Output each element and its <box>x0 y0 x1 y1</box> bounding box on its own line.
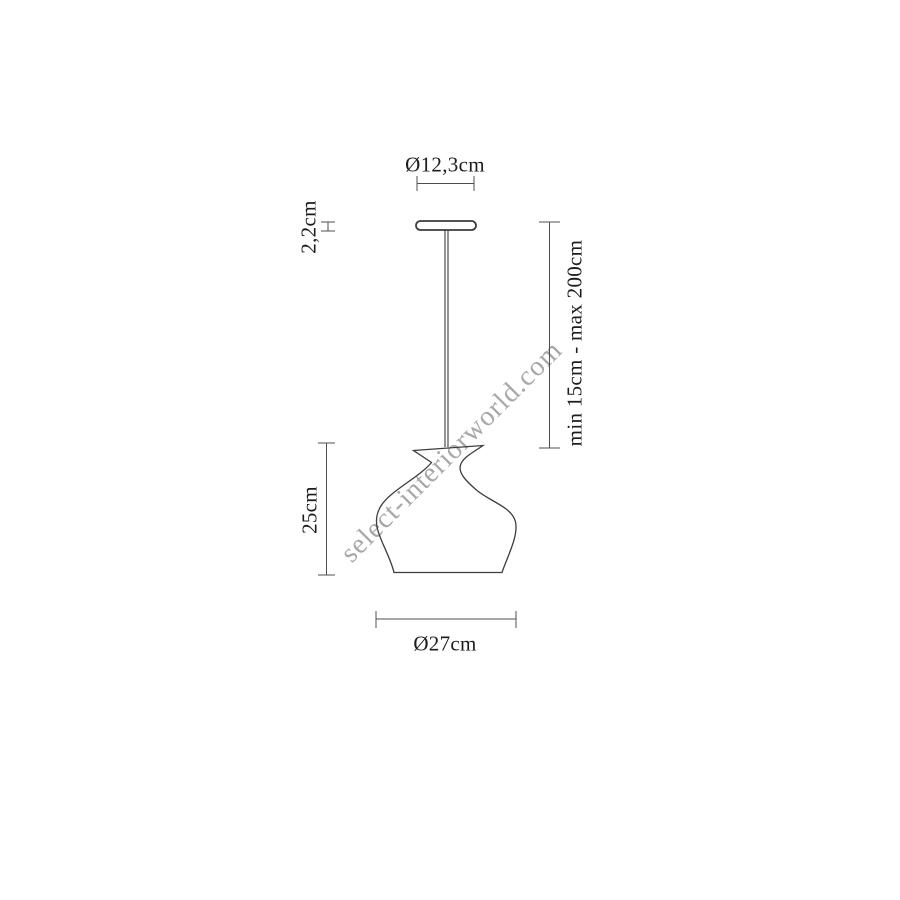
canopy-diameter-label: Ø12,3cm <box>405 153 485 178</box>
dimension-canopy-height <box>321 222 335 231</box>
canopy-height-label: 2,2cm <box>297 200 322 253</box>
lamp-technical-drawing <box>0 0 900 900</box>
lamp-shade-outline <box>376 446 516 573</box>
shade-diameter-label: Ø27cm <box>413 632 476 657</box>
dimension-canopy-diameter <box>417 176 474 191</box>
diagram-canvas: select-interiorworld.com <box>0 0 900 900</box>
dimension-shade-diameter <box>376 611 516 628</box>
dimension-suspension-range <box>539 222 560 448</box>
shade-height-label: 25cm <box>298 486 323 534</box>
suspension-range-label: min 15cm - max 200cm <box>563 240 588 447</box>
lamp-canopy <box>416 221 476 230</box>
lamp-rod <box>445 231 448 448</box>
